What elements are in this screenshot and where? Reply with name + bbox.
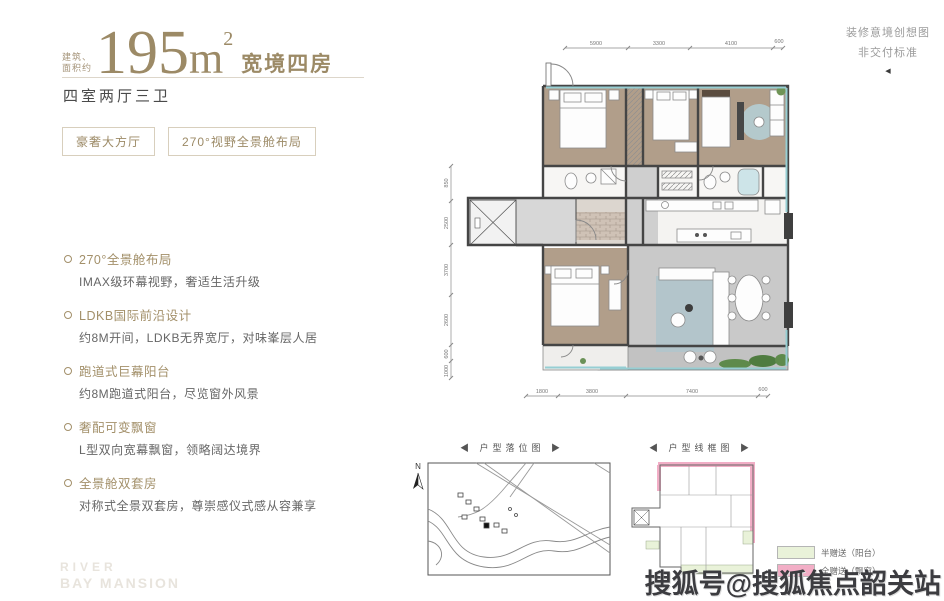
- feature-title: 跑道式巨幕阳台: [79, 361, 170, 380]
- compass-label: N: [415, 462, 421, 471]
- svg-text:600: 600: [774, 39, 783, 45]
- feature-item: 跑道式巨幕阳台 约8M跑道式阳台，尽览窗外风景: [64, 361, 384, 402]
- feature-desc: 约8M跑道式阳台，尽览窗外风景: [79, 385, 384, 402]
- feature-title: 全景舱双套房: [79, 473, 157, 492]
- area-prefix-line1: 建筑、: [62, 52, 92, 63]
- page: 建筑、 面积约 195m2 宽境四房 四室两厅三卫 豪奢大方厅 270°视野全景…: [0, 0, 944, 601]
- feature-desc: 对称式全景双套房，尊崇感仪式感从容兼享: [79, 497, 384, 514]
- badge-luxury-hall: 豪奢大方厅: [62, 127, 155, 156]
- minimap-diagram: N: [406, 457, 618, 581]
- svg-text:7400: 7400: [686, 389, 698, 395]
- brand-line1: RIVER: [60, 561, 180, 575]
- svg-text:3300: 3300: [653, 41, 665, 47]
- disclaimer-line2: 非交付标准: [846, 44, 930, 64]
- svg-text:600: 600: [444, 349, 450, 358]
- feature-item: 奢配可变飘窗 L型双向宽幕飘窗，领略阔达境界: [64, 417, 384, 458]
- feature-title: 奢配可变飘窗: [79, 417, 157, 436]
- minimap-title: ◀ 户型落位图 ▶: [406, 441, 618, 454]
- feature-item: 全景舱双套房 对称式全景双套房，尊崇感仪式感从容兼享: [64, 473, 384, 514]
- badge-270-view: 270°视野全景舱布局: [168, 127, 316, 156]
- title-divider: [62, 77, 364, 78]
- feature-item: LDKB国际前沿设计 约8M开间，LDKB无界宽厅，对味峯层人居: [64, 305, 384, 346]
- bullet-icon: [64, 423, 72, 431]
- svg-text:1000: 1000: [444, 365, 450, 377]
- disclaimer: 装修意境创想图 非交付标准 ◀: [846, 24, 930, 78]
- bay-window: [784, 302, 793, 328]
- svg-text:5900: 5900: [590, 41, 602, 47]
- elevator-shaft: [470, 200, 516, 245]
- feature-desc: 约8M开间，LDKB无界宽厅，对味峯层人居: [79, 329, 384, 346]
- bullet-icon: [64, 255, 72, 263]
- gift-balcony-small: [743, 531, 753, 544]
- feature-title: LDKB国际前沿设计: [79, 305, 192, 324]
- bay-window: [784, 213, 793, 239]
- svg-text:2500: 2500: [444, 217, 450, 229]
- svg-text:850: 850: [444, 178, 450, 187]
- area-prefix-line2: 面积约: [62, 63, 92, 74]
- svg-text:3700: 3700: [444, 264, 450, 276]
- gift-balcony-small: [646, 541, 659, 549]
- feature-item: 270°全景舱布局 IMAX级环幕视野，奢适生活升级: [64, 249, 384, 290]
- small-arrow-icon: ◀: [846, 66, 930, 79]
- legend-swatch-green: [777, 546, 815, 559]
- bullet-icon: [64, 479, 72, 487]
- feature-desc: IMAX级环幕视野，奢适生活升级: [79, 273, 384, 290]
- legend-label: 半赠送（阳台）: [821, 547, 881, 559]
- area-prefix: 建筑、 面积约: [62, 52, 92, 74]
- svg-text:1800: 1800: [536, 389, 548, 395]
- svg-text:4100: 4100: [725, 41, 737, 47]
- wireframe-outline: [632, 465, 753, 573]
- floorplan-diagram: 5900 3300 4100 600 1800 3800 7400 600 85…: [413, 30, 801, 434]
- badge-row: 豪奢大方厅 270°视野全景舱布局: [62, 127, 316, 156]
- feature-title: 270°全景舱布局: [79, 249, 172, 268]
- unit-location-figure: ◀ 户型落位图 ▶ N: [406, 441, 618, 586]
- subject-building-marker: [484, 523, 489, 528]
- svg-text:3800: 3800: [586, 389, 598, 395]
- bullet-icon: [64, 311, 72, 319]
- wireframe-title: ◀ 户型线框图 ▶: [626, 441, 776, 454]
- svg-text:600: 600: [758, 387, 767, 393]
- watermark: 搜狐号@搜狐焦点韶关站: [645, 562, 941, 601]
- svg-text:2600: 2600: [444, 314, 450, 326]
- legend-row: 半赠送（阳台）: [777, 546, 881, 559]
- area-tagline: 宽境四房: [241, 48, 333, 78]
- brand-line2: BAY MANSION: [60, 575, 180, 591]
- area-unit: m: [189, 34, 223, 83]
- wireframe-interior: [660, 465, 753, 573]
- feature-desc: L型双向宽幕飘窗，领略阔达境界: [79, 441, 384, 458]
- layout-subtitle: 四室两厅三卫: [63, 85, 171, 106]
- feature-list: 270°全景舱布局 IMAX级环幕视野，奢适生活升级 LDKB国际前沿设计 约8…: [64, 249, 384, 529]
- disclaimer-line1: 装修意境创想图: [846, 24, 930, 44]
- area-exponent: 2: [223, 28, 233, 50]
- compass-icon: [413, 473, 423, 489]
- wireframe-elevator: [634, 510, 649, 525]
- brand-logo: RIVER BAY MANSION: [60, 561, 180, 591]
- bullet-icon: [64, 367, 72, 375]
